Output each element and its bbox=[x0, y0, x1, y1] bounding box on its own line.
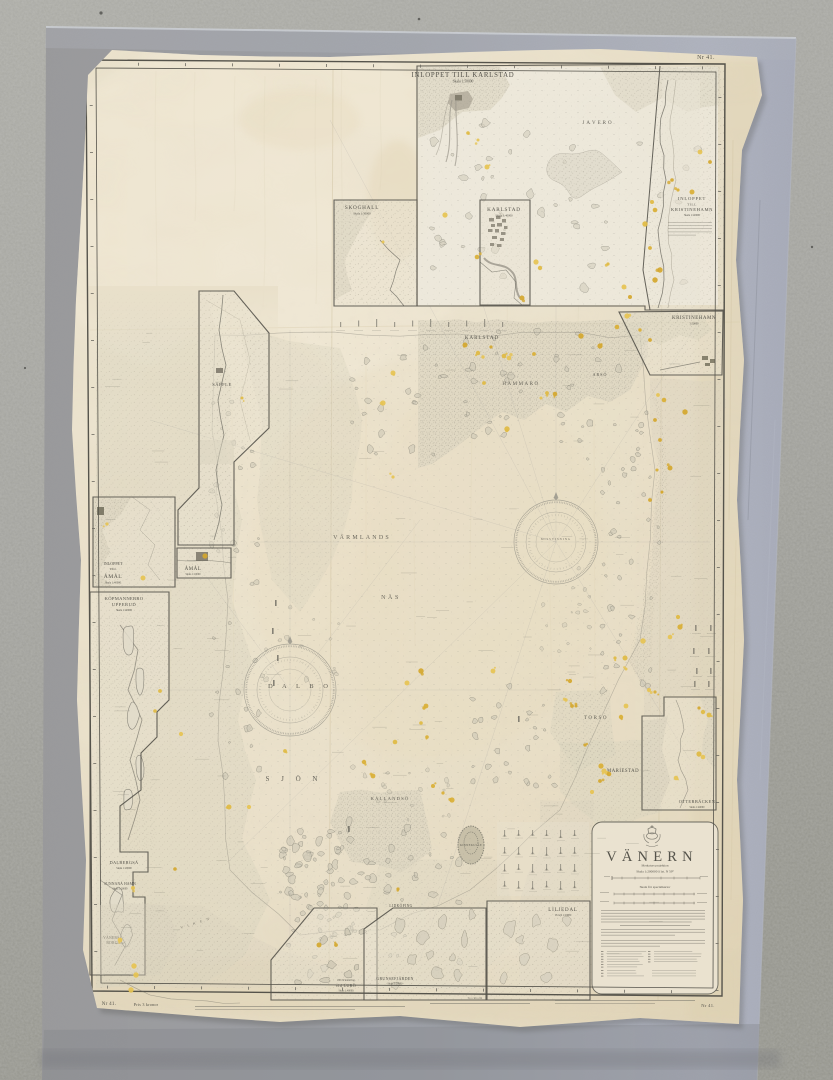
svg-text:Skala 1:40000: Skala 1:40000 bbox=[495, 214, 513, 218]
svg-text:NÄS: NÄS bbox=[381, 594, 401, 601]
svg-text:ÅMÅL: ÅMÅL bbox=[185, 566, 202, 572]
svg-text:Skala 1:200000 å lat. N 59°: Skala 1:200000 å lat. N 59° bbox=[636, 869, 674, 874]
svg-text:Till Orientering: Till Orientering bbox=[337, 979, 355, 982]
svg-text:Skala 1:50000: Skala 1:50000 bbox=[453, 80, 474, 84]
svg-text:KÖPMANNEBRO: KÖPMANNEBRO bbox=[105, 596, 144, 601]
svg-text:KRISTINEHAMN: KRISTINEHAMN bbox=[671, 207, 713, 212]
svg-text:Pris 3 kronor: Pris 3 kronor bbox=[134, 1002, 159, 1007]
svg-text:OTTERBÄCKEN: OTTERBÄCKEN bbox=[679, 799, 716, 804]
svg-text:KARLSTAD: KARLSTAD bbox=[487, 207, 521, 213]
svg-text:JÄVERÖ: JÄVERÖ bbox=[582, 120, 613, 126]
svg-text:D A L B O: D A L B O bbox=[268, 683, 332, 690]
svg-text:KINNEKULLE: KINNEKULLE bbox=[460, 843, 482, 847]
svg-text:1:50000: 1:50000 bbox=[689, 323, 699, 326]
svg-text:Stockholm: Stockholm bbox=[468, 996, 483, 1000]
svg-text:INLOPPET: INLOPPET bbox=[104, 561, 123, 566]
svg-text:INLOPPET: INLOPPET bbox=[678, 196, 706, 201]
svg-text:KARLSTAD: KARLSTAD bbox=[465, 336, 499, 341]
svg-text:MISSVISNING: MISSVISNING bbox=[541, 537, 571, 541]
svg-text:Skala 1:40000: Skala 1:40000 bbox=[105, 582, 122, 585]
svg-text:Skala 1:20000: Skala 1:20000 bbox=[116, 867, 132, 870]
svg-text:TILL: TILL bbox=[687, 203, 697, 207]
svg-text:Skala 1:10000: Skala 1:10000 bbox=[186, 573, 202, 576]
svg-text:HAMMARÖ: HAMMARÖ bbox=[502, 381, 539, 387]
svg-text:Nr 41.: Nr 41. bbox=[697, 55, 715, 61]
svg-text:Skala 1:40000: Skala 1:40000 bbox=[116, 609, 133, 612]
svg-text:MARIESTAD: MARIESTAD bbox=[607, 769, 639, 774]
svg-text:SKOGHALL: SKOGHALL bbox=[345, 205, 379, 211]
svg-text:Skala 1:50000: Skala 1:50000 bbox=[353, 212, 371, 216]
svg-text:VÄNERN: VÄNERN bbox=[606, 848, 698, 865]
svg-text:LILJEDAL: LILJEDAL bbox=[548, 908, 577, 913]
svg-text:ARSÖ: ARSÖ bbox=[593, 372, 608, 377]
svg-text:Skala för specialkartor: Skala för specialkartor bbox=[640, 885, 672, 889]
svg-text:TORSÖ: TORSÖ bbox=[584, 715, 608, 721]
svg-text:Skala 1:20000: Skala 1:20000 bbox=[113, 888, 129, 891]
svg-text:Skala 1:40000: Skala 1:40000 bbox=[339, 990, 355, 993]
svg-text:UPPERUD: UPPERUD bbox=[112, 602, 137, 607]
svg-text:DALBERGSÅ: DALBERGSÅ bbox=[109, 860, 139, 865]
svg-text:TILL: TILL bbox=[110, 567, 117, 571]
svg-text:Nr 41.: Nr 41. bbox=[102, 1002, 117, 1007]
svg-text:Vid sjö 1:20000: Vid sjö 1:20000 bbox=[555, 914, 572, 917]
svg-text:KRISTINEHAMN: KRISTINEHAMN bbox=[672, 316, 716, 321]
svg-text:Skala 1:40000: Skala 1:40000 bbox=[690, 806, 706, 809]
svg-text:Skala 1:40000: Skala 1:40000 bbox=[684, 214, 701, 217]
svg-text:GRUNSEFJÄRDEN: GRUNSEFJÄRDEN bbox=[376, 976, 413, 981]
svg-text:Nr 41.: Nr 41. bbox=[701, 1003, 715, 1008]
svg-text:Skala 1:20000: Skala 1:20000 bbox=[388, 983, 404, 986]
svg-text:KÅLLANDSÖ: KÅLLANDSÖ bbox=[371, 796, 410, 801]
svg-text:ÅMÅL: ÅMÅL bbox=[104, 572, 123, 580]
svg-text:vid LURÖ: vid LURÖ bbox=[336, 983, 356, 988]
svg-text:SUNNANÅ HAMN: SUNNANÅ HAMN bbox=[104, 881, 136, 886]
svg-text:INLOPPET TILL KARLSTAD: INLOPPET TILL KARLSTAD bbox=[411, 72, 514, 79]
svg-text:S J Ö N: S J Ö N bbox=[266, 775, 323, 783]
svg-text:Merkators projektion: Merkators projektion bbox=[642, 864, 669, 868]
svg-text:SÄFFLE: SÄFFLE bbox=[212, 382, 232, 387]
svg-text:VÄRMLANDS: VÄRMLANDS bbox=[333, 534, 391, 541]
svg-text:LIDKÖPING: LIDKÖPING bbox=[389, 903, 412, 908]
